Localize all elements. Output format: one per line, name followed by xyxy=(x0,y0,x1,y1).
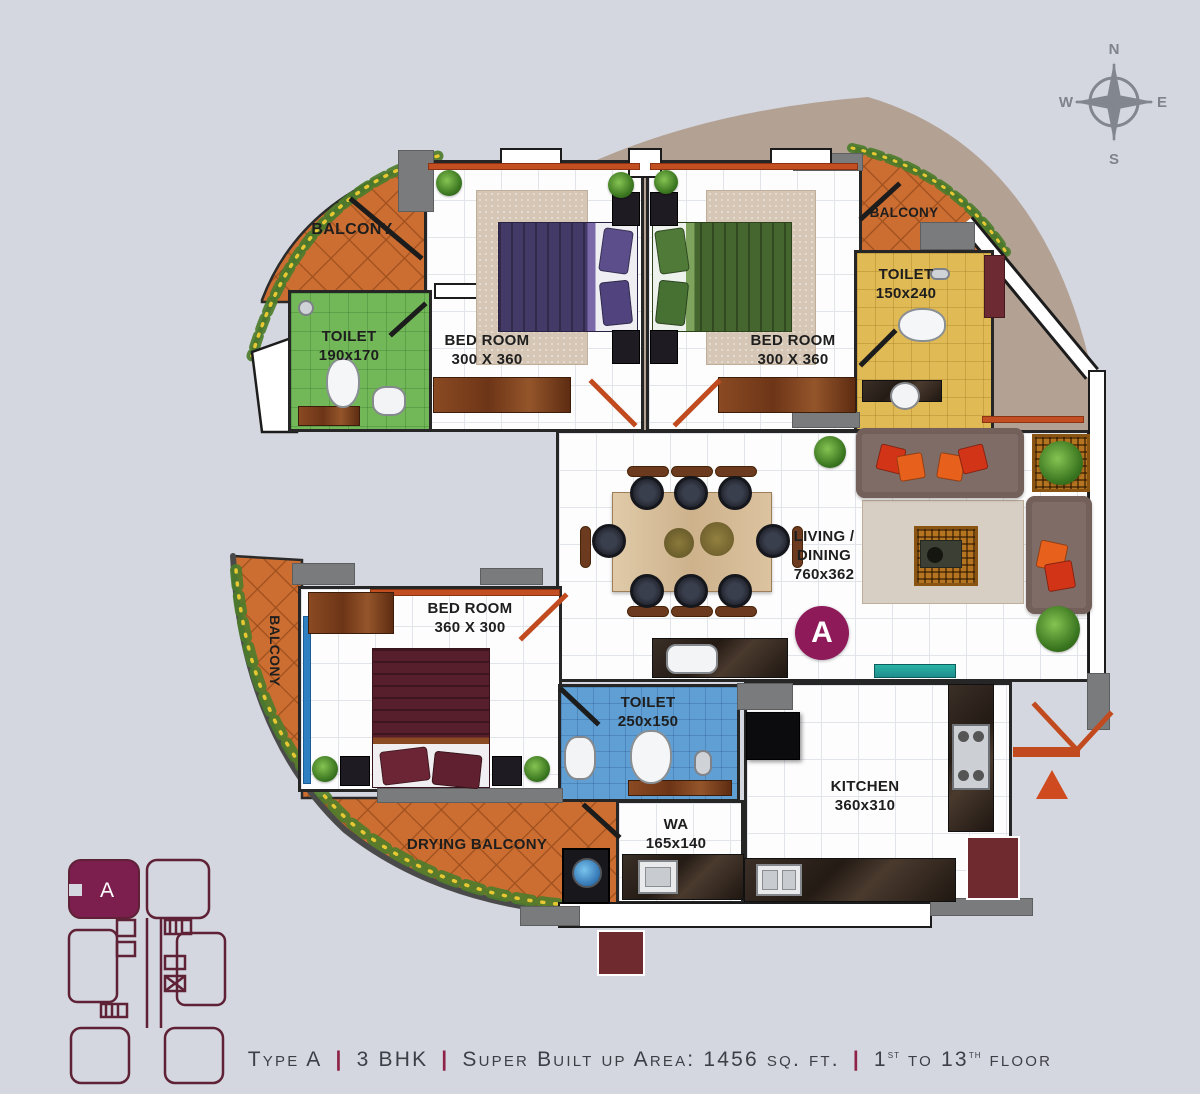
room-label: WA xyxy=(628,816,724,835)
key-plan-unit-a-label: A xyxy=(100,879,114,902)
label-balcony-top-right: BALCONY xyxy=(856,205,952,222)
room-label: KITCHEN xyxy=(800,778,930,797)
compass-rose-icon: N S W E xyxy=(1058,38,1170,170)
label-bedroom-top-right: BED ROOM 300 X 360 xyxy=(718,332,868,370)
compass-south-label: S xyxy=(1109,151,1119,168)
compass-north-label: N xyxy=(1109,41,1120,58)
label-balcony-left: BALCONY xyxy=(265,599,283,703)
label-bedroom-top-left: BED ROOM 300 X 360 xyxy=(412,332,562,370)
room-size: 300 X 360 xyxy=(718,351,868,370)
label-balcony-top-left: BALCONY xyxy=(292,220,412,240)
label-toilet-top-left: TOILET 190x170 xyxy=(290,328,408,366)
entrance-arrow-icon xyxy=(1036,770,1068,799)
room-label: TOILET xyxy=(290,328,408,347)
room-size: 360 X 300 xyxy=(390,619,550,638)
room-size: 190x170 xyxy=(290,347,408,366)
caption-type: Type A xyxy=(248,1048,323,1071)
caption-bhk: 3 BHK xyxy=(357,1048,429,1071)
room-label: BALCONY xyxy=(311,221,392,238)
label-wa: WA 165x140 xyxy=(628,816,724,854)
room-label: BALCONY xyxy=(267,615,283,686)
compass-west-label: W xyxy=(1059,94,1074,111)
room-label: LIVING / xyxy=(768,528,880,547)
label-kitchen: KITCHEN 360x310 xyxy=(800,778,930,816)
caption-separator: | xyxy=(323,1048,357,1071)
room-size: 760x362 xyxy=(768,566,880,585)
label-bedroom-left: BED ROOM 360 X 300 xyxy=(390,600,550,638)
room-size: 150x240 xyxy=(858,285,954,304)
room-label: TOILET xyxy=(858,266,954,285)
caption-separator: | xyxy=(428,1048,462,1071)
room-size: 250x150 xyxy=(588,713,708,732)
room-size: 360x310 xyxy=(800,797,930,816)
room-size: 165x140 xyxy=(628,835,724,854)
plan-caption: Type A|3 BHK|Super Built up Area: 1456 s… xyxy=(130,1048,1170,1072)
room-label: BED ROOM xyxy=(412,332,562,351)
room-size: 300 X 360 xyxy=(412,351,562,370)
caption-separator: | xyxy=(840,1048,874,1071)
label-toilet-center: TOILET 250x150 xyxy=(588,694,708,732)
room-label: DINING xyxy=(768,547,880,566)
floor-plan-canvas: BALCONY TOILET 190x170 BED ROOM 300 X 36… xyxy=(0,0,1200,1094)
room-label: BED ROOM xyxy=(390,600,550,619)
label-living-dining: LIVING / DINING 760x362 xyxy=(768,528,880,584)
room-label: BALCONY xyxy=(870,205,939,220)
caption-floor: 1st to 13th floor xyxy=(874,1048,1052,1071)
room-label: BED ROOM xyxy=(718,332,868,351)
label-drying-balcony: DRYING BALCONY xyxy=(372,836,582,855)
label-toilet-top-right: TOILET 150x240 xyxy=(858,266,954,304)
room-label: TOILET xyxy=(588,694,708,713)
unit-badge-label: A xyxy=(811,616,833,650)
caption-area: Super Built up Area: 1456 sq. ft. xyxy=(462,1048,839,1071)
unit-badge: A xyxy=(795,606,849,660)
room-label: DRYING BALCONY xyxy=(407,836,547,853)
compass-east-label: E xyxy=(1157,94,1167,111)
